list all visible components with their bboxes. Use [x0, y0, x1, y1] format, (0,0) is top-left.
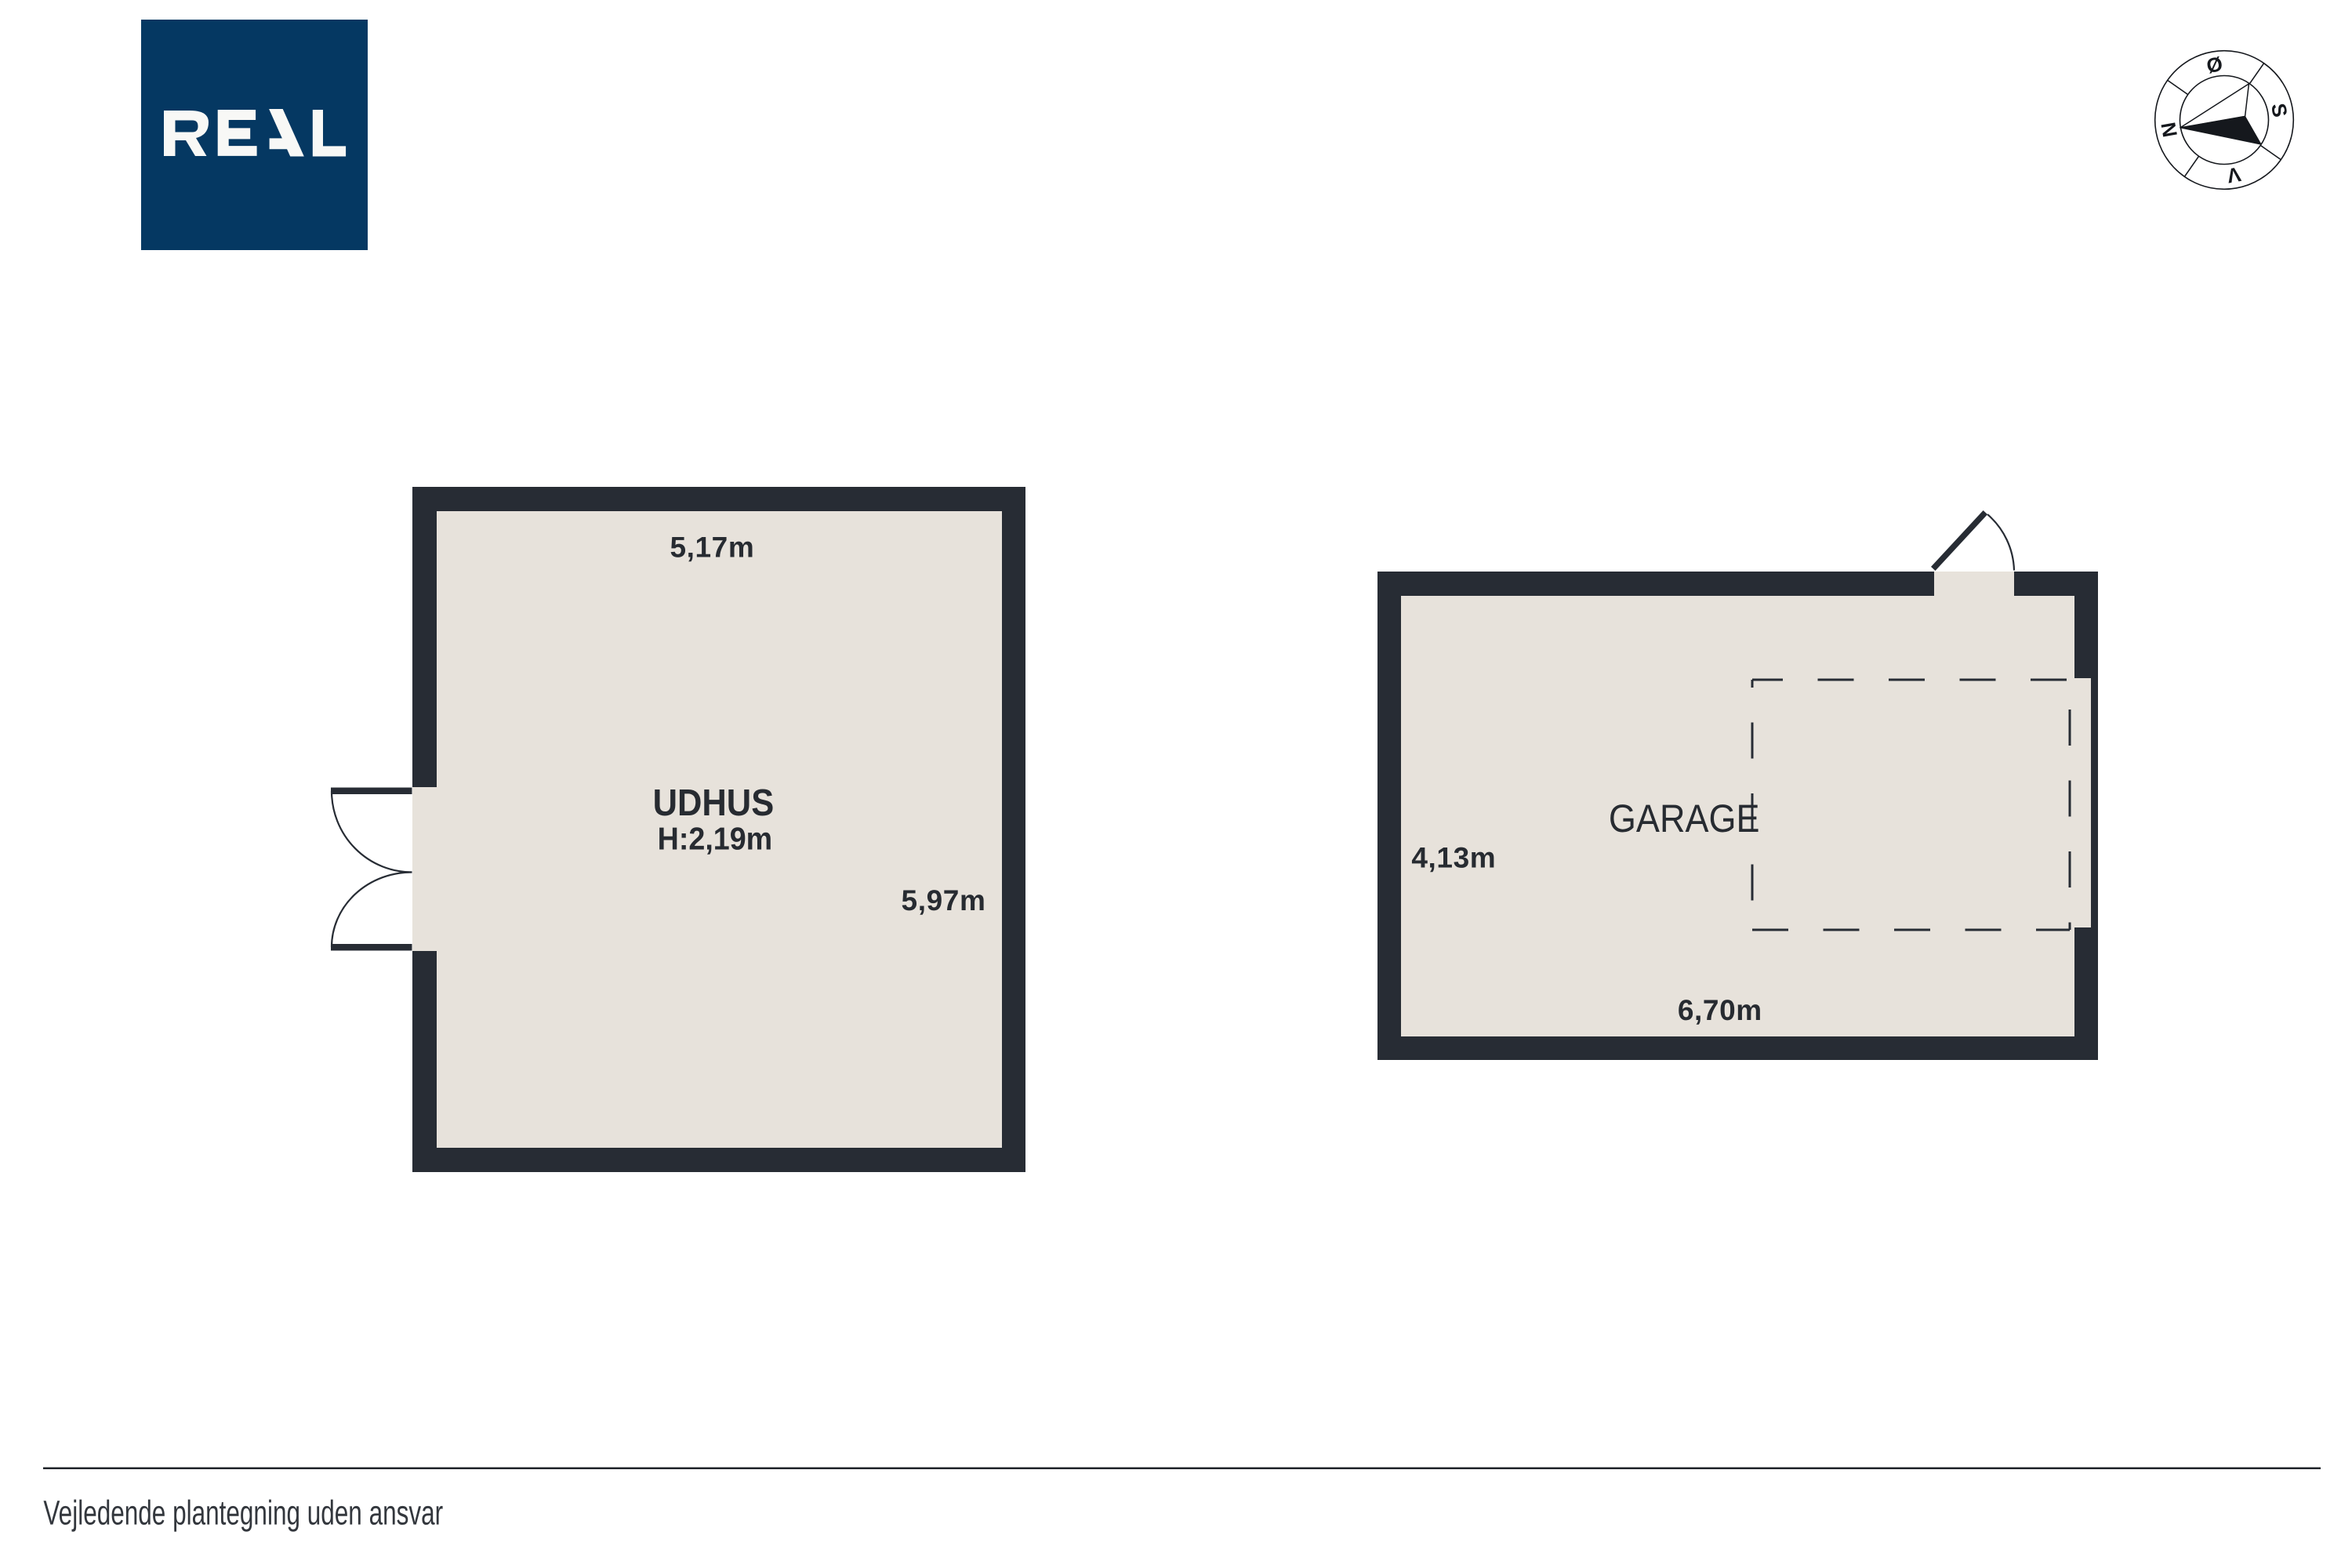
svg-text:6,70m: 6,70m: [1678, 994, 1762, 1026]
svg-text:UDHUS: UDHUS: [653, 782, 775, 824]
svg-text:Ø: Ø: [2205, 52, 2224, 78]
svg-text:5,17m: 5,17m: [670, 532, 754, 564]
svg-text:GARAGE: GARAGE: [1609, 797, 1760, 840]
svg-text:4,13m: 4,13m: [1411, 842, 1496, 874]
svg-text:S: S: [2267, 101, 2292, 118]
svg-text:Vejledende plantegning uden an: Vejledende plantegning uden ansvar: [43, 1494, 443, 1533]
svg-text:N: N: [2156, 121, 2182, 140]
svg-text:5,97m: 5,97m: [902, 884, 986, 916]
svg-text:V: V: [2225, 162, 2243, 188]
svg-text:H:2,19m: H:2,19m: [658, 820, 773, 856]
